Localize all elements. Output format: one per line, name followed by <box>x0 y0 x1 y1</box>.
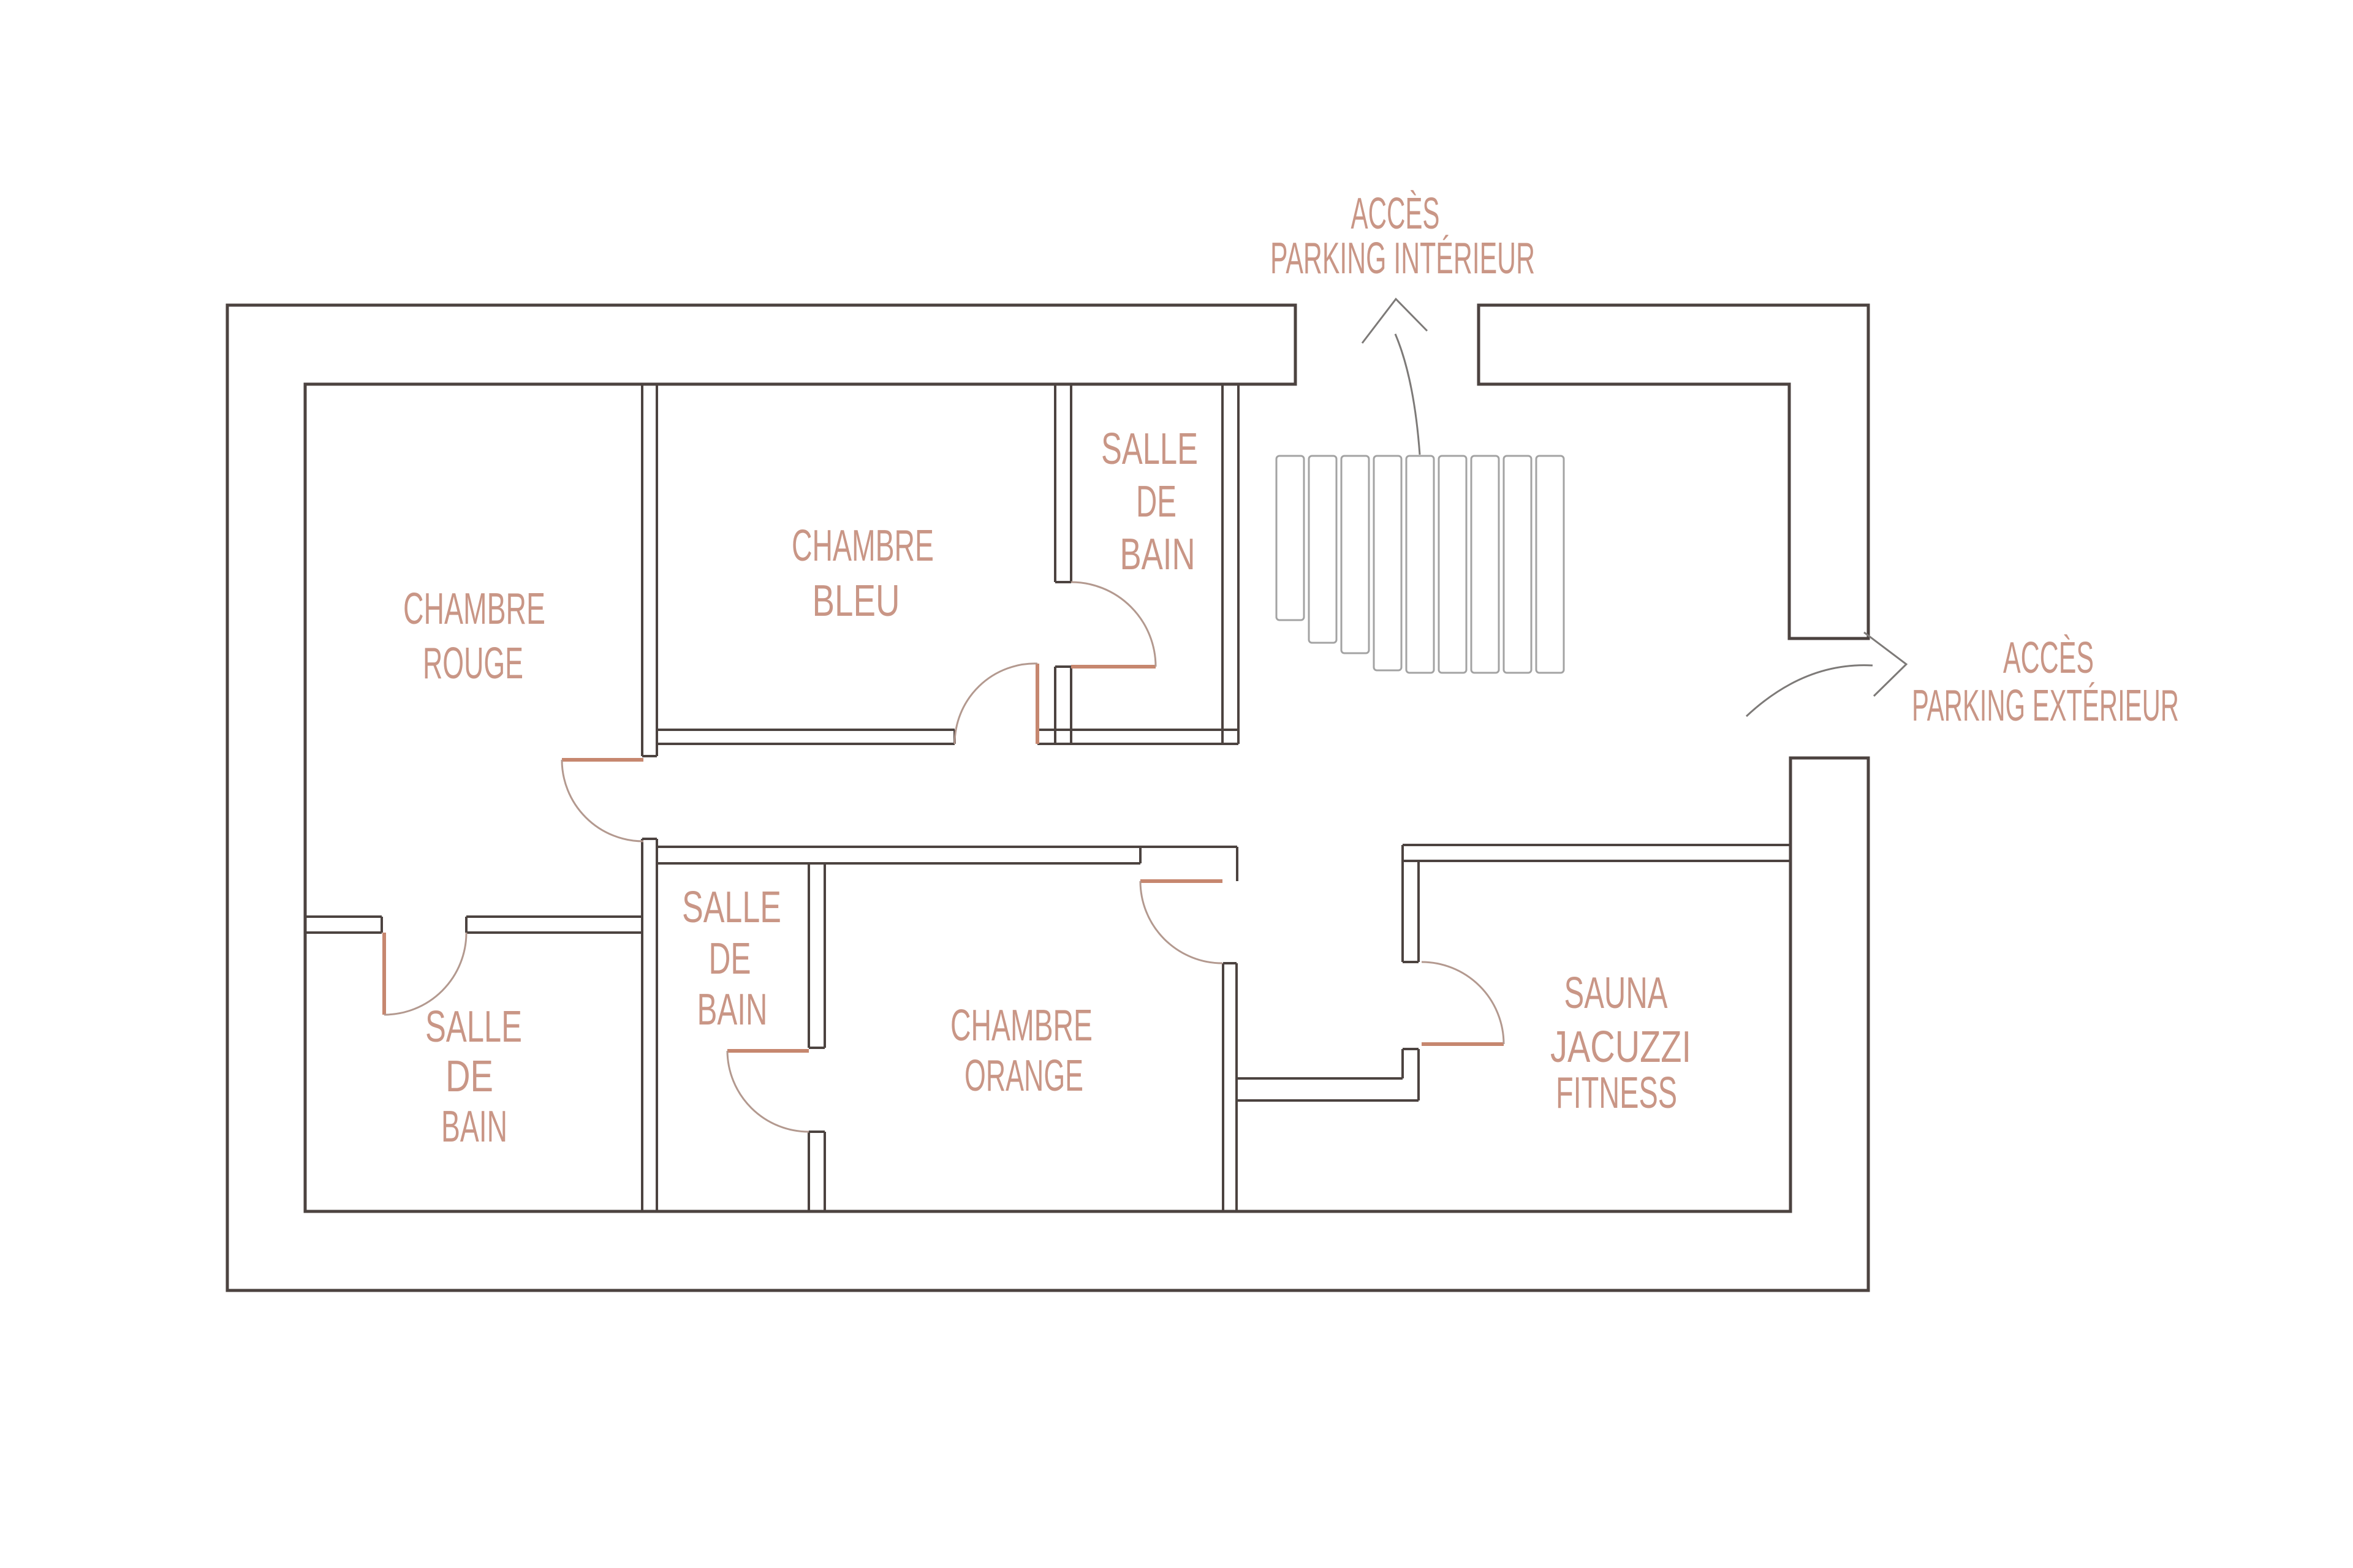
svg-text:SAUNA: SAUNA <box>1564 969 1668 1018</box>
svg-text:CHAMBRE: CHAMBRE <box>403 585 545 634</box>
svg-text:DE: DE <box>709 934 751 983</box>
svg-text:BAIN: BAIN <box>697 985 768 1034</box>
svg-text:DE: DE <box>1136 477 1176 526</box>
svg-text:BAIN: BAIN <box>1120 530 1195 579</box>
svg-text:SALLE: SALLE <box>1101 425 1198 474</box>
svg-text:FITNESS: FITNESS <box>1556 1069 1677 1118</box>
svg-text:PARKING EXTÉRIEUR: PARKING EXTÉRIEUR <box>1912 681 2179 730</box>
svg-text:PARKING INTÉRIEUR: PARKING INTÉRIEUR <box>1270 234 1535 283</box>
svg-text:SALLE: SALLE <box>425 1002 522 1051</box>
svg-text:ACCÈS: ACCÈS <box>2003 634 2094 683</box>
svg-text:DE: DE <box>445 1052 493 1101</box>
svg-text:CHAMBRE: CHAMBRE <box>792 521 934 570</box>
svg-text:ROUGE: ROUGE <box>423 639 523 688</box>
svg-text:ACCÈS: ACCÈS <box>1351 189 1440 238</box>
svg-text:BAIN: BAIN <box>441 1102 507 1151</box>
svg-text:JACUZZI: JACUZZI <box>1550 1023 1691 1072</box>
svg-text:ORANGE: ORANGE <box>964 1051 1083 1100</box>
svg-text:BLEU: BLEU <box>813 577 900 626</box>
svg-text:SALLE: SALLE <box>682 883 781 932</box>
svg-text:CHAMBRE: CHAMBRE <box>950 1001 1093 1050</box>
